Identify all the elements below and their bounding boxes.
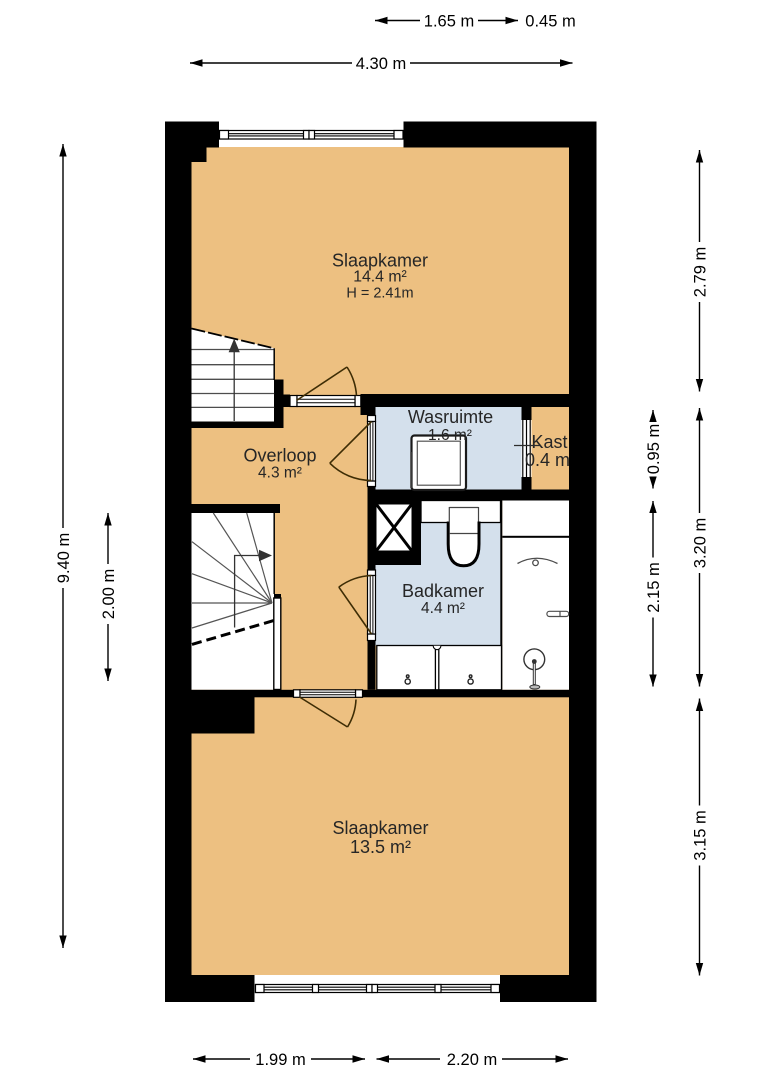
svg-text:4.3 m²: 4.3 m² (258, 465, 302, 482)
svg-text:1.6 m²: 1.6 m² (428, 427, 472, 444)
svg-text:1.65 m: 1.65 m (424, 13, 474, 31)
svg-text:4.30 m: 4.30 m (356, 55, 406, 73)
svg-text:3.20 m: 3.20 m (692, 518, 710, 568)
svg-text:0.95 m: 0.95 m (645, 424, 663, 474)
svg-text:2.15 m: 2.15 m (645, 562, 663, 612)
svg-text:Slaapkamer: Slaapkamer (332, 818, 428, 838)
svg-text:Wasruimte: Wasruimte (408, 407, 493, 427)
svg-text:14.4 m²: 14.4 m² (353, 268, 407, 285)
svg-text:2.20 m: 2.20 m (447, 1051, 497, 1069)
svg-text:13.5 m²: 13.5 m² (350, 837, 411, 857)
svg-text:Slaapkamer: Slaapkamer (332, 250, 428, 270)
svg-text:0.4 m: 0.4 m (525, 450, 570, 470)
svg-text:3.15 m: 3.15 m (692, 810, 710, 860)
svg-text:4.4 m²: 4.4 m² (421, 600, 465, 617)
svg-text:2.00 m: 2.00 m (100, 569, 118, 619)
svg-text:H = 2.41m: H = 2.41m (346, 285, 413, 301)
svg-text:9.40 m: 9.40 m (55, 533, 73, 583)
svg-text:2.79 m: 2.79 m (692, 247, 710, 297)
svg-text:Badkamer: Badkamer (402, 581, 484, 601)
svg-text:1.99 m: 1.99 m (255, 1051, 305, 1069)
svg-text:Kast: Kast (531, 432, 567, 452)
svg-text:0.45 m: 0.45 m (525, 13, 575, 31)
svg-text:Overloop: Overloop (243, 446, 316, 466)
